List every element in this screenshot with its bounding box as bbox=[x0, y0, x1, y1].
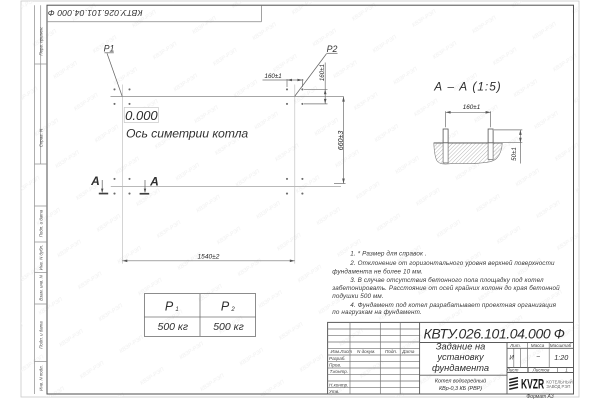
svg-text:Р1: Р1 bbox=[104, 44, 115, 54]
svg-text:160±1: 160±1 bbox=[265, 73, 282, 80]
svg-text:Утв.: Утв. bbox=[329, 389, 339, 394]
svg-text:500 кг: 500 кг bbox=[158, 321, 189, 333]
svg-text:Дата: Дата bbox=[401, 349, 415, 354]
svg-text:Разраб.: Разраб. bbox=[329, 356, 346, 361]
svg-text:1540±2: 1540±2 bbox=[198, 253, 220, 260]
svg-text:4. Фундамент под котел разраба: 4. Фундамент под котел разрабатывает про… bbox=[350, 301, 556, 309]
svg-text:А: А bbox=[90, 174, 100, 188]
svg-text:Инв. N подл.: Инв. N подл. bbox=[39, 365, 44, 391]
svg-text:Инв. N дубл.: Инв. N дубл. bbox=[39, 245, 44, 270]
svg-text:Подп.: Подп. bbox=[385, 349, 397, 354]
svg-text:Р2: Р2 bbox=[327, 44, 338, 54]
svg-text:1: 1 bbox=[565, 368, 568, 373]
svg-text:фундамента: фундамента bbox=[432, 363, 489, 373]
svg-text:Масса: Масса bbox=[531, 343, 545, 348]
svg-text:КВр-0,3 КБ (РВР): КВр-0,3 КБ (РВР) bbox=[439, 386, 482, 392]
svg-text:ЗАВОД РЭП: ЗАВОД РЭП bbox=[546, 384, 570, 389]
svg-text:фундамента не более 10 мм.: фундамента не более 10 мм. bbox=[332, 267, 423, 275]
svg-text:500 кг: 500 кг bbox=[213, 321, 244, 333]
svg-text:50±1: 50±1 bbox=[511, 147, 518, 161]
svg-text:160±1: 160±1 bbox=[319, 64, 326, 81]
svg-text:1:20: 1:20 bbox=[554, 353, 568, 362]
svg-text:N докум.: N докум. bbox=[357, 349, 376, 354]
svg-text:2: 2 bbox=[230, 307, 235, 313]
svg-text:Листов: Листов bbox=[532, 368, 550, 373]
svg-text:Изм.Лист: Изм.Лист bbox=[331, 349, 353, 354]
svg-text:660±3: 660±3 bbox=[338, 131, 345, 151]
svg-text:Т.контр.: Т.контр. bbox=[330, 369, 349, 374]
svg-text:Н.контр.: Н.контр. bbox=[329, 382, 348, 387]
svg-text:–: – bbox=[536, 355, 541, 361]
svg-text:Задание на: Задание на bbox=[436, 341, 486, 351]
svg-text:Подп. и дата: Подп. и дата bbox=[39, 321, 44, 349]
svg-text:Взам. инв. N: Взам. инв. N bbox=[39, 274, 44, 300]
svg-text:Р: Р bbox=[165, 300, 174, 314]
svg-text:Перв. примен.: Перв. примен. bbox=[39, 26, 44, 55]
svg-text:забетонировать. Расстояние от: забетонировать. Расстояние от осей крайн… bbox=[331, 284, 560, 292]
svg-text:Подп. и дата: Подп. и дата bbox=[39, 209, 44, 237]
svg-text:И: И bbox=[509, 355, 514, 361]
svg-text:Лит.: Лит. bbox=[509, 343, 521, 348]
svg-text:Котел водогрейный: Котел водогрейный bbox=[435, 378, 486, 385]
svg-text:А: А bbox=[149, 175, 159, 189]
svg-text:1. * Размер для справок .: 1. * Размер для справок . bbox=[350, 249, 427, 257]
svg-text:KVZR: KVZR bbox=[521, 376, 545, 392]
svg-text:Лист: Лист bbox=[506, 368, 519, 373]
svg-text:Масштаб: Масштаб bbox=[550, 343, 572, 348]
svg-text:А – А (1:5): А – А (1:5) bbox=[433, 79, 501, 93]
svg-text:3. В случае отсутствия бетонно: 3. В случае отсутствия бетонного пола пл… bbox=[350, 276, 544, 284]
svg-text:Формат А3: Формат А3 bbox=[526, 394, 554, 400]
svg-text:по нагрузкам на фундамент.: по нагрузкам на фундамент. bbox=[332, 308, 421, 316]
svg-text:2. Отклонение от горизонтально: 2. Отклонение от горизонтального уровня … bbox=[349, 259, 555, 267]
svg-text:Ось симетрии котла: Ось симетрии котла bbox=[126, 126, 248, 140]
svg-text:1: 1 bbox=[175, 307, 178, 313]
svg-text:КВТУ.026.101.04.000 Ф: КВТУ.026.101.04.000 Ф bbox=[48, 8, 143, 18]
svg-text:Справ. N: Справ. N bbox=[39, 128, 44, 147]
svg-text:подушки 500 мм.: подушки 500 мм. bbox=[332, 292, 383, 300]
svg-text:0.000: 0.000 bbox=[125, 108, 158, 123]
svg-text:установку: установку bbox=[436, 352, 485, 362]
svg-text:КВТУ.026.101.04.000 Ф: КВТУ.026.101.04.000 Ф bbox=[424, 325, 565, 341]
svg-text:Р: Р bbox=[221, 300, 230, 314]
svg-text:160±1: 160±1 bbox=[463, 104, 480, 111]
svg-text:Пров.: Пров. bbox=[329, 363, 341, 368]
